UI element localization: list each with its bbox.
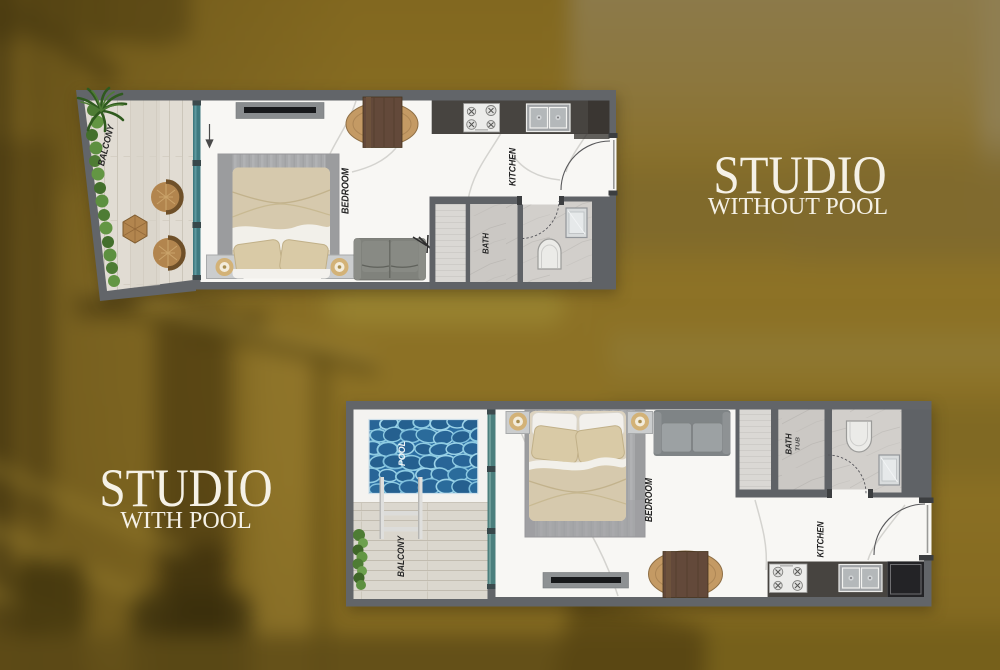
svg-text:BEDROOM: BEDROOM [644,477,655,522]
svg-text:BALCONY: BALCONY [396,535,407,577]
svg-text:POOL: POOL [397,441,407,466]
svg-text:TUB: TUB [796,437,802,451]
svg-text:BATH: BATH [482,233,491,254]
svg-text:BEDROOM: BEDROOM [341,167,352,214]
svg-text:KITCHEN: KITCHEN [508,147,519,186]
svg-text:KITCHEN: KITCHEN [816,521,827,558]
svg-text:BATH: BATH [785,433,794,454]
